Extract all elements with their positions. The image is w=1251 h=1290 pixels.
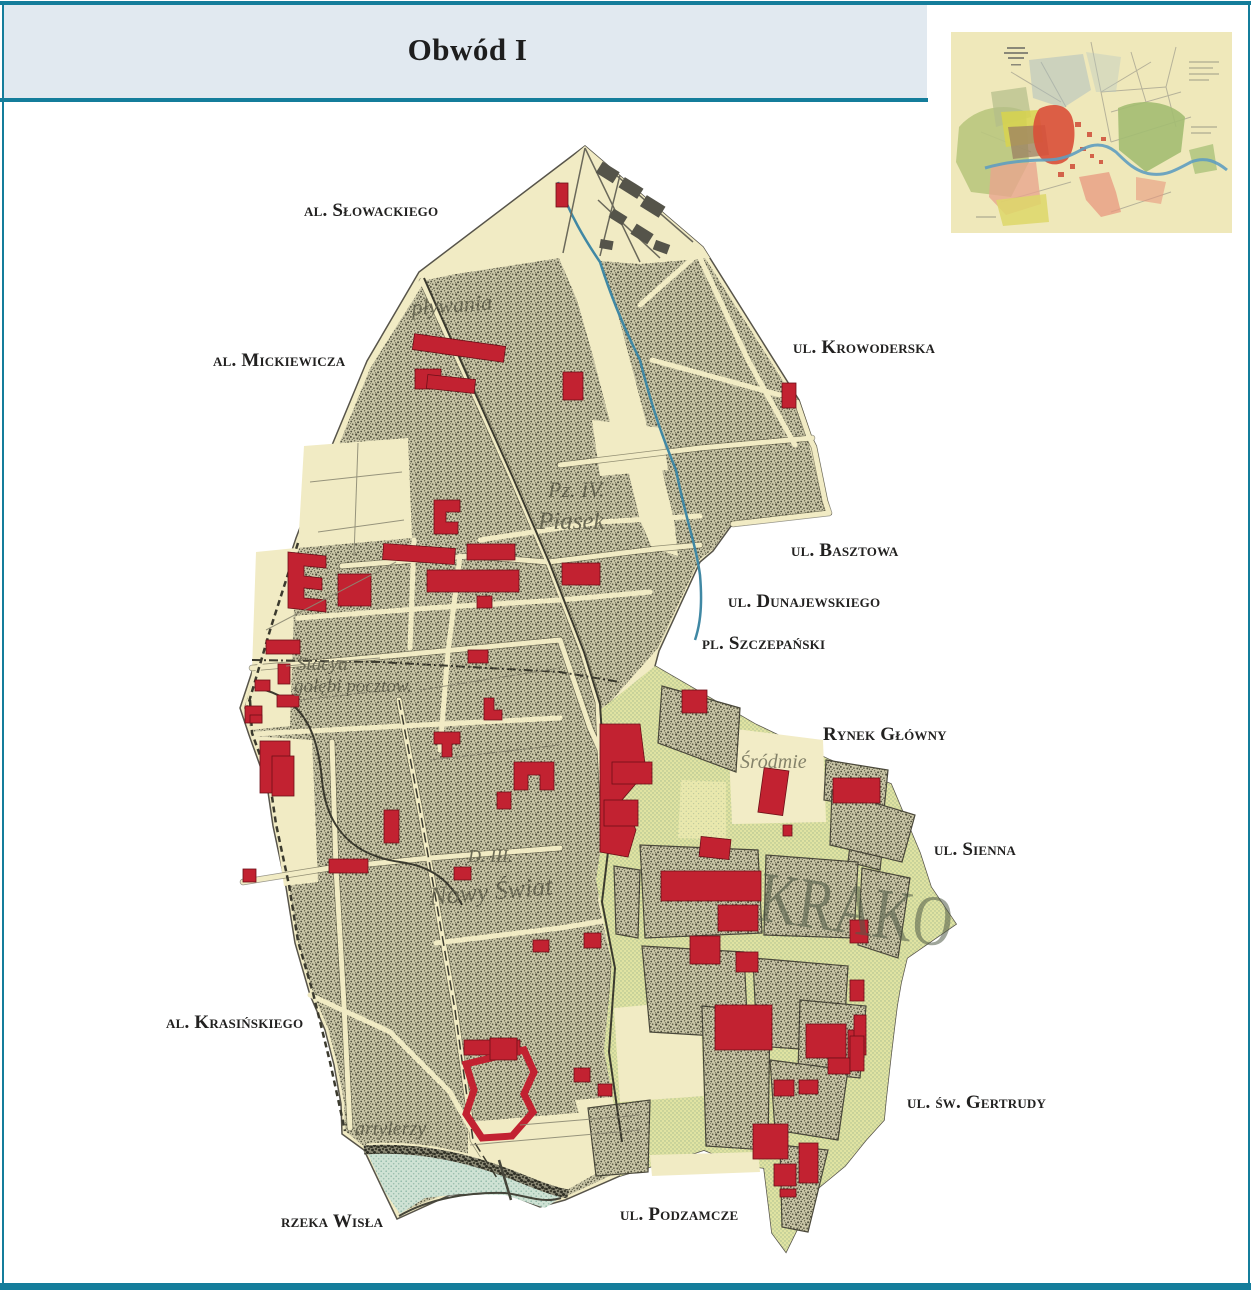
svg-text:artylerzy: artylerzy (355, 1118, 426, 1140)
svg-text:Śródmie: Śródmie (740, 749, 807, 773)
svg-text:gołębi pocztow.: gołębi pocztow. (294, 676, 412, 697)
svg-text:Piasek: Piasek (537, 508, 606, 535)
svg-text:D. III.: D. III. (467, 846, 512, 866)
svg-text:Stacya: Stacya (297, 654, 348, 675)
svg-text:Pz. IV.: Pz. IV. (547, 477, 604, 502)
